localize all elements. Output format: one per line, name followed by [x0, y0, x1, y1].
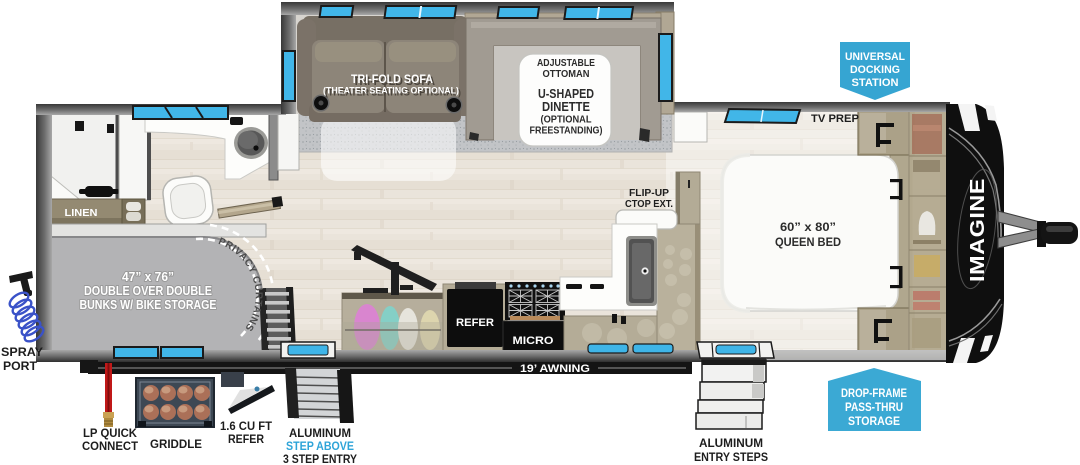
svg-text:OTTOMAN: OTTOMAN — [543, 68, 590, 80]
svg-text:TRI-FOLD SOFA: TRI-FOLD SOFA — [351, 74, 433, 86]
svg-text:(THEATER SEATING OPTIONAL): (THEATER SEATING OPTIONAL) — [323, 86, 459, 97]
svg-text:STORAGE: STORAGE — [848, 416, 900, 428]
svg-text:REFER: REFER — [228, 434, 265, 446]
svg-text:ALUMINUM: ALUMINUM — [699, 436, 763, 450]
svg-text:DOUBLE OVER DOUBLE: DOUBLE OVER DOUBLE — [84, 284, 212, 298]
svg-text:CONNECT: CONNECT — [82, 441, 138, 453]
svg-text:QUEEN BED: QUEEN BED — [775, 235, 841, 249]
svg-text:U-SHAPED: U-SHAPED — [538, 87, 594, 101]
svg-text:47” x 76”: 47” x 76” — [122, 270, 174, 284]
svg-text:DOCKING: DOCKING — [850, 64, 900, 76]
svg-text:SPRAY: SPRAY — [1, 345, 43, 359]
svg-text:MICRO: MICRO — [513, 335, 554, 347]
svg-text:IMAGINE: IMAGINE — [967, 178, 989, 282]
svg-text:FREESTANDING): FREESTANDING) — [530, 125, 603, 137]
svg-text:19’ AWNING: 19’ AWNING — [520, 363, 590, 375]
svg-text:3 STEP ENTRY: 3 STEP ENTRY — [283, 454, 357, 465]
svg-text:PORT: PORT — [3, 359, 38, 373]
svg-text:60” x 80”: 60” x 80” — [780, 220, 836, 234]
svg-text:STATION: STATION — [852, 77, 899, 89]
svg-text:ENTRY STEPS: ENTRY STEPS — [694, 450, 768, 464]
svg-text:LP QUICK: LP QUICK — [83, 428, 138, 440]
svg-text:REFER: REFER — [456, 317, 494, 329]
svg-text:PASS-THRU: PASS-THRU — [845, 402, 903, 414]
svg-text:LINEN: LINEN — [65, 207, 98, 219]
svg-text:FLIP-UP: FLIP-UP — [629, 188, 669, 199]
svg-text:GRIDDLE: GRIDDLE — [150, 439, 202, 451]
svg-text:TV PREP: TV PREP — [811, 113, 859, 125]
svg-text:BUNKS W/ BIKE STORAGE: BUNKS W/ BIKE STORAGE — [80, 298, 217, 312]
svg-text:DROP-FRAME: DROP-FRAME — [841, 388, 907, 400]
svg-text:1.6 CU FT: 1.6 CU FT — [220, 421, 272, 433]
svg-text:DINETTE: DINETTE — [542, 100, 590, 114]
svg-text:CTOP EXT.: CTOP EXT. — [625, 199, 673, 210]
svg-text:ALUMINUM: ALUMINUM — [289, 428, 351, 440]
svg-text:UNIVERSAL: UNIVERSAL — [845, 51, 905, 63]
svg-text:STEP ABOVE: STEP ABOVE — [286, 441, 354, 453]
